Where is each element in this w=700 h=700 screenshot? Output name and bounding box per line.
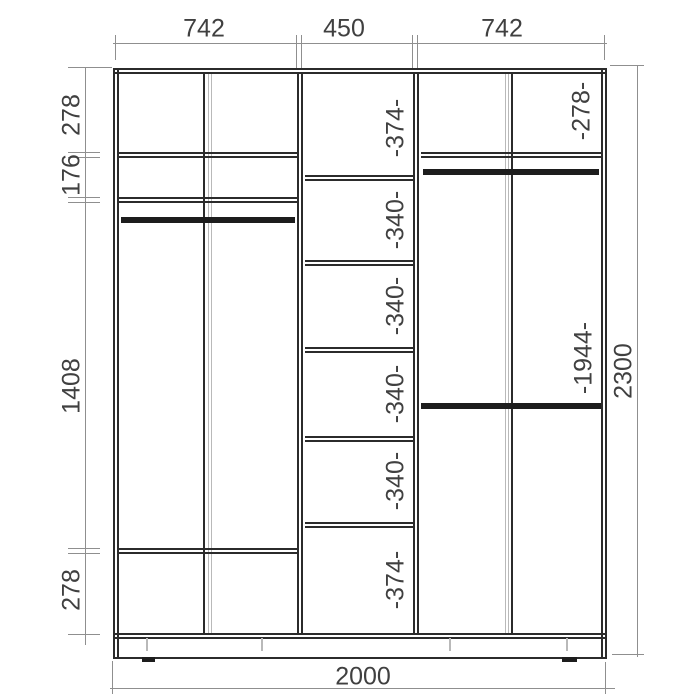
center-section-label-4: -340- — [384, 365, 409, 423]
dim-line-top — [113, 43, 607, 44]
dim-tick — [68, 548, 100, 549]
left-shelf — [119, 152, 297, 158]
right-wall — [601, 68, 607, 659]
dim-extension — [604, 35, 605, 60]
door-wheel-mark — [261, 638, 263, 651]
right-section-label-tall: -1944- — [572, 322, 597, 394]
right-section-label-top: -278- — [570, 82, 595, 140]
center-section-label-3: -340- — [384, 277, 409, 335]
dim-label-top-left: 742 — [183, 17, 225, 42]
dim-label-left-1: 278 — [60, 94, 85, 136]
wardrobe-dimension-drawing: 742 450 742 278 176 1408 278 2300 2000 -… — [0, 0, 700, 700]
right-shelf — [421, 152, 601, 158]
dim-label-left-2: 176 — [60, 154, 85, 196]
dim-extension — [296, 35, 297, 68]
dim-tick — [68, 152, 100, 153]
dim-extension — [301, 35, 302, 68]
dim-label-left-3: 1408 — [60, 358, 85, 414]
door-wheel-mark — [449, 638, 451, 651]
right-hanging-rod — [423, 169, 599, 175]
dim-tick — [68, 202, 100, 203]
dim-extension — [612, 654, 644, 655]
door-wheel-mark — [566, 638, 568, 651]
center-section-label-2: -340- — [384, 191, 409, 249]
dim-extension — [610, 65, 644, 66]
center-shelf — [305, 522, 413, 528]
bottom-panel — [113, 633, 607, 639]
center-shelf — [305, 260, 413, 266]
left-shelf — [119, 548, 297, 554]
left-hanging-rod — [121, 217, 295, 223]
center-shelf — [305, 347, 413, 353]
partition-center-right — [413, 74, 419, 633]
dim-extension — [412, 35, 413, 68]
dim-tick — [68, 197, 100, 198]
dim-extension — [417, 35, 418, 68]
dim-extension — [115, 35, 116, 60]
dim-label-top-right: 742 — [481, 17, 523, 42]
dim-label-overall-width: 2000 — [335, 665, 391, 690]
dim-extension — [112, 661, 113, 694]
dim-extension — [605, 662, 606, 694]
dim-label-top-center: 450 — [323, 17, 365, 42]
door-wheel-mark — [146, 638, 148, 651]
right-foot — [562, 657, 577, 662]
center-section-label-6: -374- — [384, 551, 409, 609]
dim-tick — [68, 553, 100, 554]
left-shelf — [119, 197, 297, 203]
dim-tick — [68, 634, 100, 635]
right-lower-rod — [421, 403, 601, 409]
center-section-label-1: -374- — [384, 99, 409, 157]
center-shelf — [305, 436, 413, 442]
top-panel — [113, 68, 607, 74]
center-section-label-5: -340- — [384, 452, 409, 510]
dim-tick — [68, 67, 112, 68]
dim-label-left-4: 278 — [60, 569, 85, 611]
center-shelf — [305, 175, 413, 181]
partition-center-left — [297, 74, 303, 633]
left-foot — [142, 657, 155, 662]
dim-label-overall-height: 2300 — [612, 343, 637, 399]
base-bottom-edge — [113, 657, 607, 659]
